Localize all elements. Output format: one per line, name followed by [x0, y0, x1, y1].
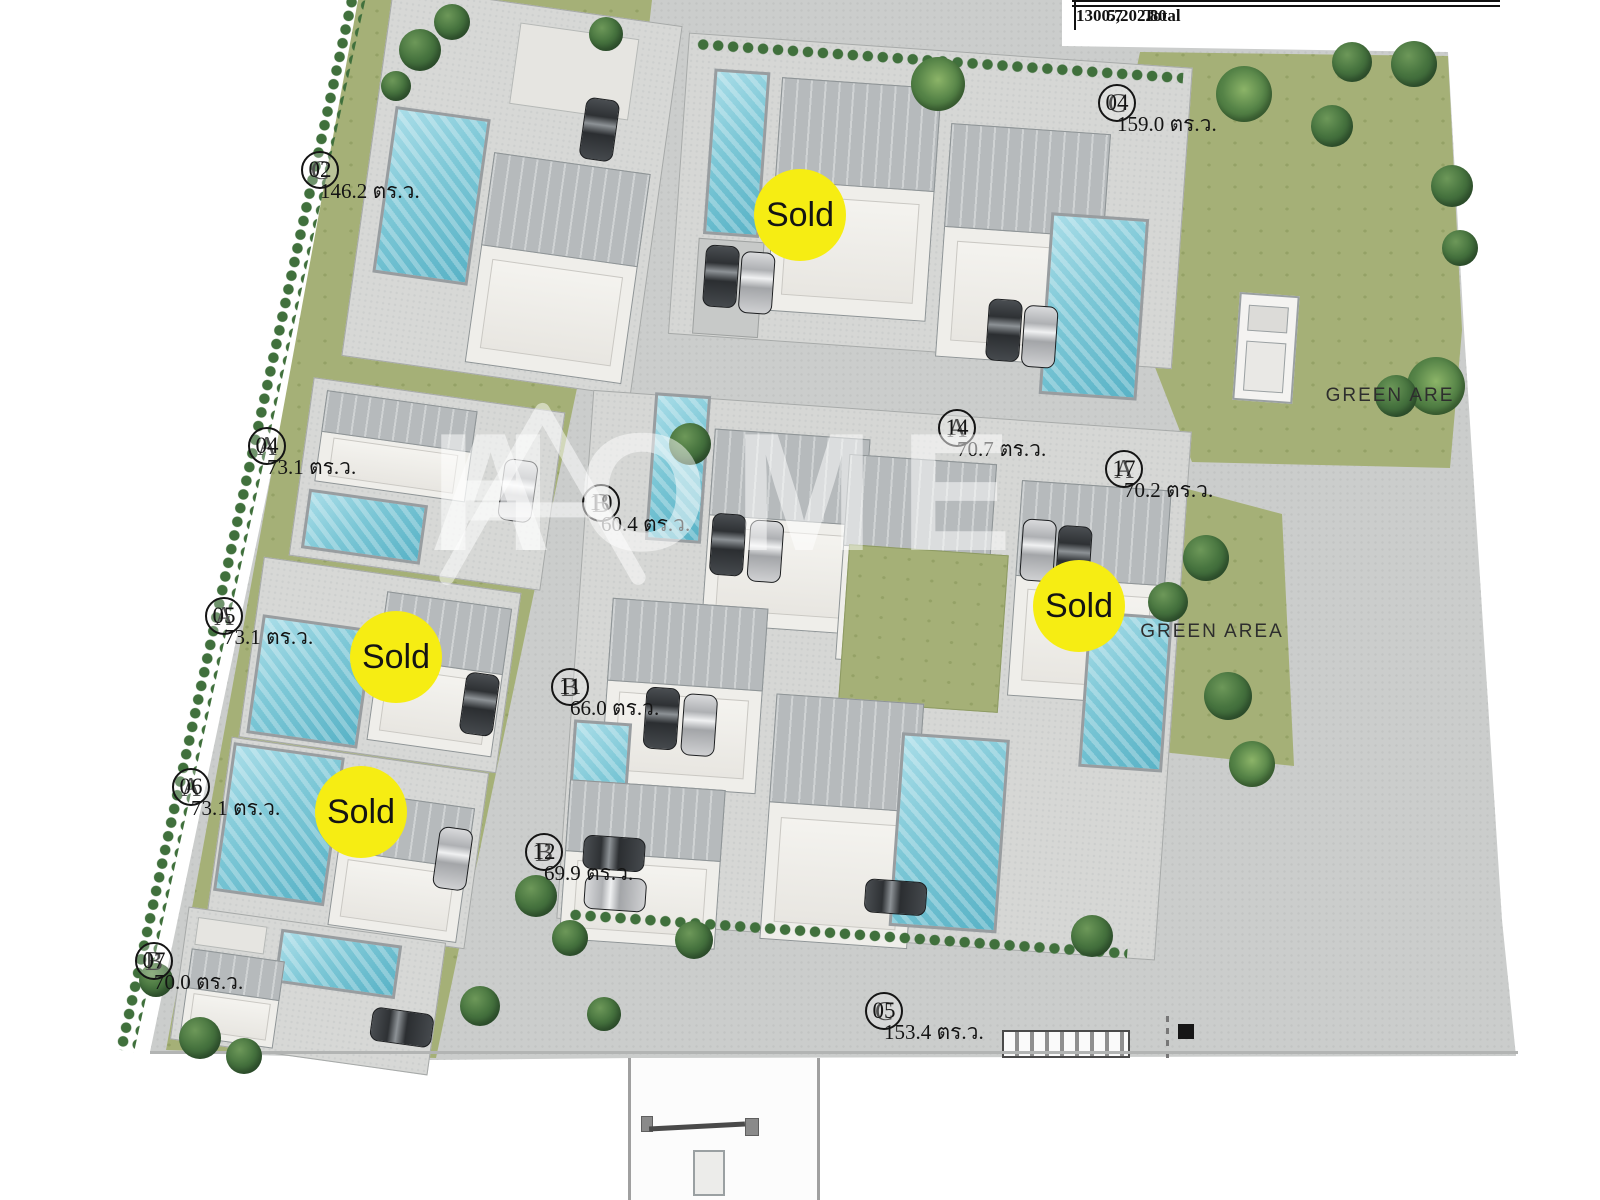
- tree: [1183, 535, 1229, 581]
- tree: [1148, 582, 1188, 622]
- guard-house: [693, 1150, 725, 1196]
- tree: [1071, 915, 1113, 957]
- green-area-label-2: GREEN AREA: [1140, 621, 1284, 643]
- site-plan: A HOME C05 TYPE C 613.6 153.4 Total 5,20…: [0, 0, 1600, 1200]
- unit-area: 60.4 ตร.ว.: [601, 508, 690, 541]
- utility-room: [1243, 341, 1286, 394]
- tree: [226, 1038, 262, 1074]
- car: [1021, 305, 1059, 369]
- car: [497, 458, 539, 524]
- tree: [1442, 230, 1478, 266]
- tree: [1391, 41, 1437, 87]
- table-cell-total-wah: 1300.7: [1074, 2, 1123, 30]
- tree: [589, 17, 623, 51]
- tree: [1332, 42, 1372, 82]
- villa-building: [465, 152, 651, 384]
- car: [369, 1006, 435, 1048]
- entrance-road: [628, 1058, 820, 1200]
- tree: [434, 4, 470, 40]
- car: [709, 513, 747, 577]
- tree: [179, 1017, 221, 1059]
- car: [432, 826, 474, 892]
- pool: [1039, 212, 1149, 400]
- tree: [381, 71, 411, 101]
- unit-area: 73.1 ตร.ว.: [191, 792, 280, 825]
- terrace: [194, 917, 267, 954]
- unit-area: 69.9 ตร.ว.: [544, 857, 633, 890]
- tree: [399, 29, 441, 71]
- palm-tree: [1216, 66, 1272, 122]
- unit-area: 70.7 ตร.ว.: [957, 433, 1046, 466]
- road-marking: [1178, 1024, 1194, 1039]
- tree: [552, 920, 588, 956]
- tree: [1431, 165, 1473, 207]
- sold-badge-4: Sold: [1033, 560, 1125, 652]
- lawn-patch: [838, 544, 1009, 713]
- unit-area: 153.4 ตร.ว.: [884, 1016, 984, 1049]
- car: [746, 519, 784, 583]
- car: [578, 97, 620, 163]
- car: [864, 878, 928, 916]
- car: [702, 244, 740, 308]
- sold-badge-2: Sold: [350, 611, 442, 703]
- tree: [675, 921, 713, 959]
- pool: [301, 489, 428, 565]
- tree: [1311, 105, 1353, 147]
- villa-building: [314, 390, 477, 502]
- unit-area: 73.1 ตร.ว.: [267, 451, 356, 484]
- sold-badge-3: Sold: [315, 766, 407, 858]
- summary-table: C05 TYPE C 613.6 153.4 Total 5,202.80 13…: [1072, 0, 1500, 2]
- unit-area: 70.2 ตร.ว.: [1124, 474, 1213, 507]
- tree: [587, 997, 621, 1031]
- car: [985, 298, 1023, 362]
- tree: [460, 986, 500, 1026]
- car: [738, 251, 776, 315]
- car: [680, 693, 718, 757]
- plot-a04: [289, 377, 566, 591]
- unit-area: 73.1 ตร.ว.: [224, 621, 313, 654]
- tree: [669, 423, 711, 465]
- site-boundary-line: [150, 1051, 1518, 1054]
- gate-post: [745, 1118, 759, 1136]
- utility-room: [1247, 305, 1289, 334]
- unit-area: 159.0 ตร.ว.: [1117, 108, 1217, 141]
- unit-area: 66.0 ตร.ว.: [570, 692, 659, 725]
- pool: [274, 929, 402, 999]
- palm-tree: [911, 57, 965, 111]
- palm-tree: [1229, 741, 1275, 787]
- gate-barrier: [649, 1121, 745, 1131]
- tree: [1204, 672, 1252, 720]
- unit-area: 70.0 ตร.ว.: [154, 966, 243, 999]
- utility-building: [1232, 292, 1299, 404]
- road-dashed-line: [1166, 1016, 1169, 1062]
- sold-badge-1: Sold: [754, 169, 846, 261]
- unit-area: 146.2 ตร.ว.: [320, 175, 420, 208]
- green-area-label-1: GREEN ARE: [1326, 385, 1455, 407]
